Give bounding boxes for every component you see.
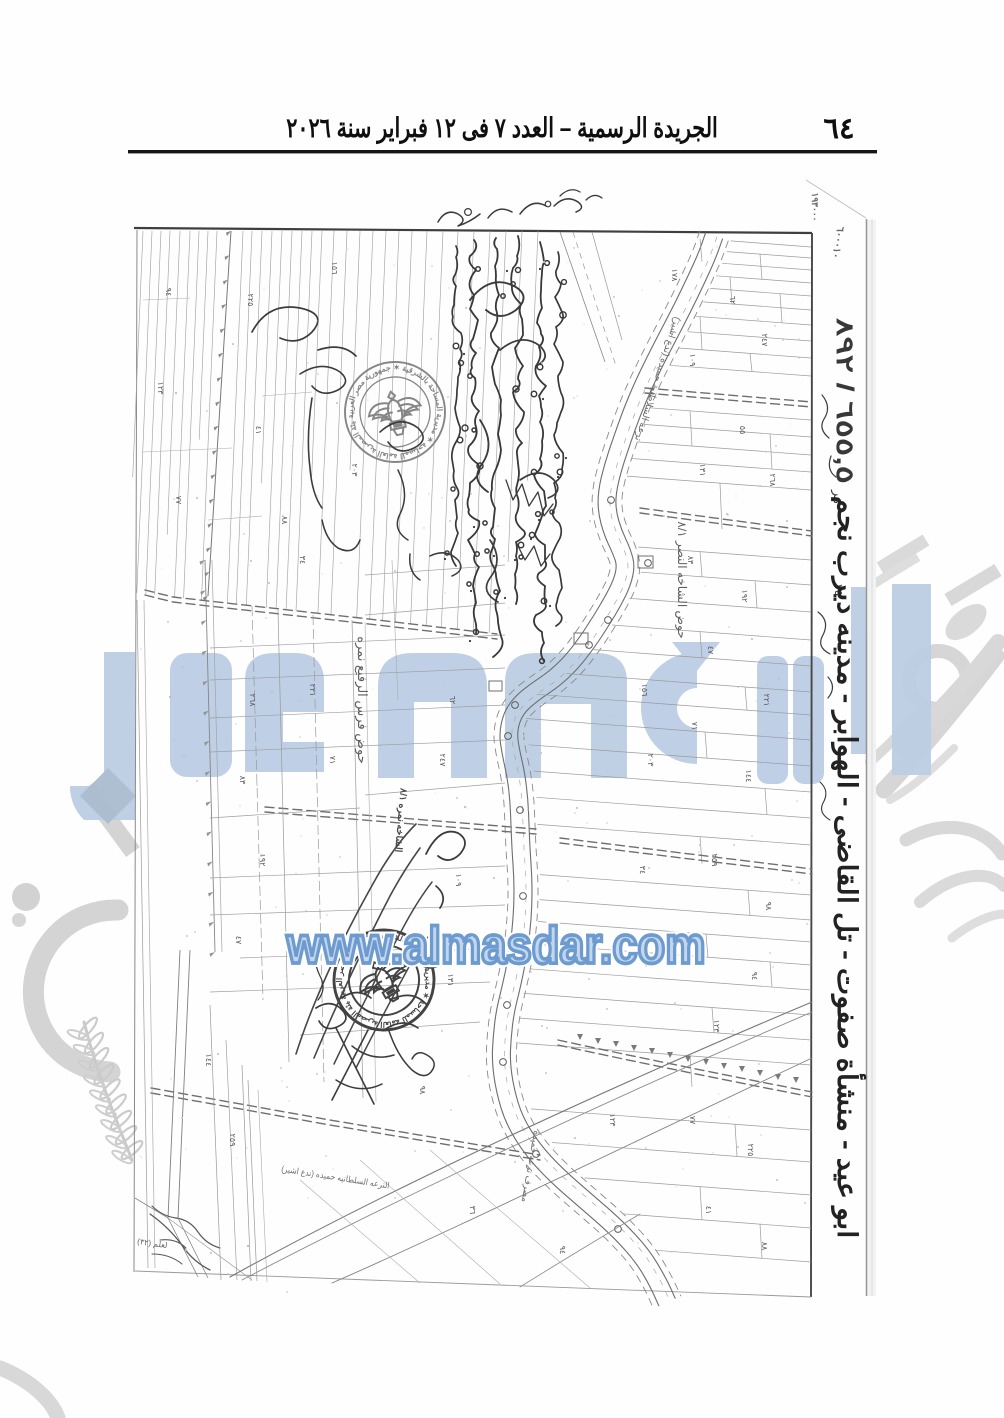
svg-text:حوض فرس الرفيع نمره: حوض فرس الرفيع نمره (354, 636, 370, 763)
svg-text:١٠٩: ١٠٩ (688, 354, 697, 367)
svg-text:٩٤: ٩٤ (750, 972, 759, 981)
svg-text:٧٧: ٧٧ (174, 496, 183, 505)
svg-text:١٣١: ١٣١ (698, 464, 707, 477)
svg-text:٣٤: ٣٤ (298, 556, 307, 565)
svg-text:١٤٤: ١٤٤ (204, 1054, 213, 1067)
svg-text:٨٨: ٨٨ (280, 516, 289, 525)
svg-text:٦٢: ٦٢ (448, 696, 457, 705)
svg-text:٩٨: ٩٨ (418, 1086, 427, 1095)
svg-text:١٣١: ١٣١ (446, 974, 455, 987)
svg-text:١٢٣: ١٢٣ (156, 382, 165, 396)
svg-text:٨٣: ٨٣ (686, 556, 695, 565)
svg-text:٢٠٣: ٢٠٣ (350, 464, 359, 478)
svg-text:٧١: ٧١ (328, 756, 337, 765)
svg-text:٦٢: ٦٢ (728, 296, 737, 305)
svg-text:٣٦: ٣٦ (468, 1206, 477, 1215)
svg-text:٢٢١: ٢٢١ (308, 684, 317, 697)
svg-text:١٩٢: ١٩٢ (740, 590, 749, 603)
svg-text:٢٥٩: ٢٥٩ (228, 1134, 237, 1147)
svg-text:١٩٣٠٠٠: ١٩٣٠٠٠ (810, 192, 820, 221)
svg-text:١٠٩: ١٠٩ (454, 874, 463, 887)
svg-text:٢٢٥: ٢٢٥ (246, 294, 255, 307)
svg-text:١٤٤: ١٤٤ (744, 770, 753, 783)
svg-text:٢٦٨: ٢٦٨ (768, 474, 777, 488)
svg-text:٩٨: ٩٨ (764, 902, 773, 911)
svg-text:٢٥٩: ٢٥٩ (710, 854, 719, 867)
svg-text:٤١: ٤١ (704, 1206, 713, 1215)
svg-text:١٢٣: ١٢٣ (608, 1114, 617, 1128)
svg-text:الجريدة الرسمية – العدد ٧ فى ١: الجريدة الرسمية – العدد ٧ فى ١٢ فبراير س… (286, 113, 718, 144)
svg-text:١٥٦: ١٥٦ (330, 262, 339, 275)
svg-text:ابو عيد - منشأة صفوت - تل القا: ابو عيد - منشأة صفوت - تل القاضى - الهوا… (830, 496, 866, 1239)
svg-text:١٧٨: ١٧٨ (670, 269, 679, 283)
svg-text:١٢٣: ١٢٣ (712, 1020, 721, 1034)
svg-text:٦٤: ٦٤ (823, 113, 854, 145)
svg-text:٩٤: ٩٤ (558, 1246, 567, 1255)
svg-text:١٥٦: ١٥٦ (640, 684, 649, 697)
svg-text:٦٥٥,٥ / ٨٩٢: ٦٥٥,٥ / ٨٩٢ (831, 318, 858, 484)
svg-text:٩٤: ٩٤ (164, 288, 173, 297)
svg-text:٢٦٨: ٢٦٨ (248, 694, 257, 708)
svg-text:٧١: ٧١ (690, 722, 699, 731)
svg-text:٨٣: ٨٣ (238, 776, 247, 785)
svg-text:حوض الشاخه النصر ٨/١: حوض الشاخه النصر ٨/١ (675, 521, 689, 638)
svg-text:٢٤٧: ٢٤٧ (760, 334, 769, 348)
svg-text:٤٧: ٤٧ (234, 936, 243, 945)
svg-text:٨٨: ٨٨ (760, 1242, 769, 1251)
svg-text:٤١: ٤١ (254, 426, 263, 435)
svg-text:٧٧: ٧٧ (688, 1116, 697, 1125)
svg-text:٤٧: ٤٧ (706, 646, 715, 655)
svg-text:www.almasdar.com: www.almasdar.com (286, 917, 706, 975)
svg-text:٥٥: ٥٥ (738, 426, 747, 435)
svg-text:٣٤: ٣٤ (638, 866, 647, 875)
svg-text:٢٢٥: ٢٢٥ (746, 1144, 755, 1157)
svg-text:٢٠٣: ٢٠٣ (646, 754, 655, 768)
svg-text:٢٢١: ٢٢١ (762, 694, 771, 707)
svg-text:٢٤٧: ٢٤٧ (438, 754, 447, 768)
